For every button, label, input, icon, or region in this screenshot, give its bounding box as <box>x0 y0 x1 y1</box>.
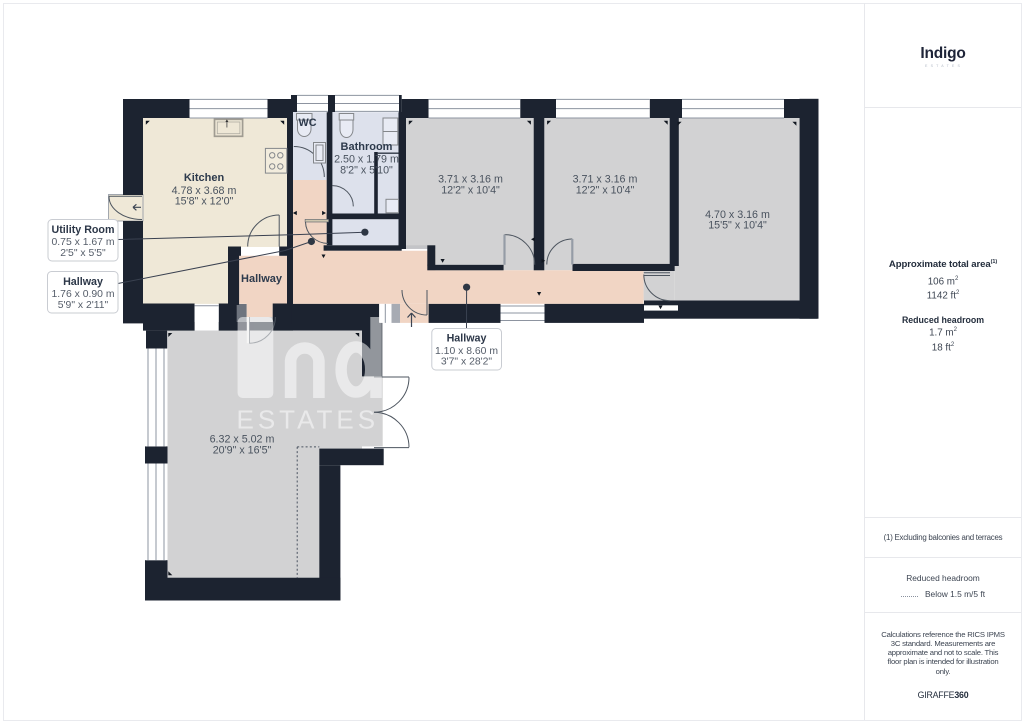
svg-text:15'5" x 10'4": 15'5" x 10'4" <box>708 220 767 232</box>
svg-text:20'9" x 16'5": 20'9" x 16'5" <box>213 445 272 457</box>
svg-text:2'5" x 5'5": 2'5" x 5'5" <box>60 248 106 259</box>
svg-text:3'7" x 28'2": 3'7" x 28'2" <box>441 357 493 368</box>
svg-text:12'2" x 10'4": 12'2" x 10'4" <box>441 185 500 197</box>
svg-text:Hallway: Hallway <box>241 273 283 285</box>
svg-text:Hallway: Hallway <box>447 333 487 345</box>
svg-text:Hallway: Hallway <box>63 276 103 288</box>
svg-text:Kitchen: Kitchen <box>184 172 225 184</box>
svg-text:8'2" x 5'10": 8'2" x 5'10" <box>340 165 393 177</box>
svg-text:1.76 x 0.90 m: 1.76 x 0.90 m <box>52 289 115 300</box>
svg-text:12'2" x 10'4": 12'2" x 10'4" <box>576 185 635 197</box>
svg-text:0.75 x 1.67 m: 0.75 x 1.67 m <box>52 237 115 248</box>
svg-text:Bathroom: Bathroom <box>341 141 393 153</box>
svg-text:15'8" x 12'0": 15'8" x 12'0" <box>175 196 234 208</box>
svg-text:ESTATES: ESTATES <box>237 405 380 435</box>
svg-text:WC: WC <box>299 117 317 129</box>
svg-text:Utility Room: Utility Room <box>52 224 115 236</box>
svg-text:5'9" x 2'11": 5'9" x 2'11" <box>58 300 109 311</box>
svg-text:1.10 x 8.60 m: 1.10 x 8.60 m <box>435 346 498 357</box>
